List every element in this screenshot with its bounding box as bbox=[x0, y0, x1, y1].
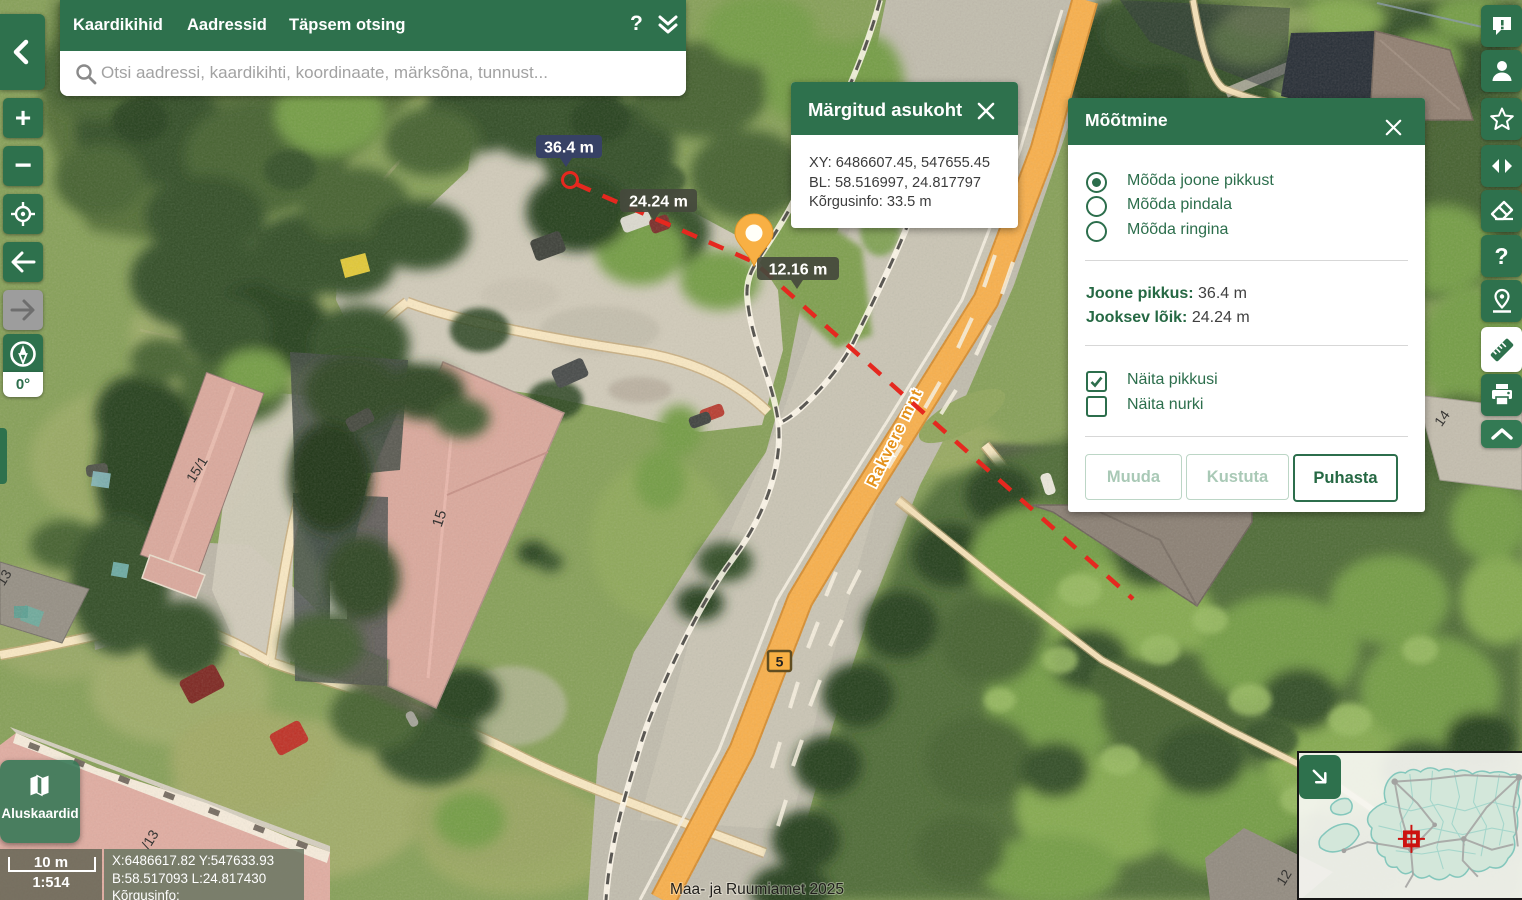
svg-text:Maa- ja Ruumiamet 2025: Maa- ja Ruumiamet 2025 bbox=[670, 881, 844, 898]
svg-text:5: 5 bbox=[776, 654, 784, 670]
svg-text:36.4 m: 36.4 m bbox=[544, 140, 594, 157]
svg-text:12.16 m: 12.16 m bbox=[769, 262, 828, 279]
svg-text:24.24 m: 24.24 m bbox=[629, 194, 688, 211]
